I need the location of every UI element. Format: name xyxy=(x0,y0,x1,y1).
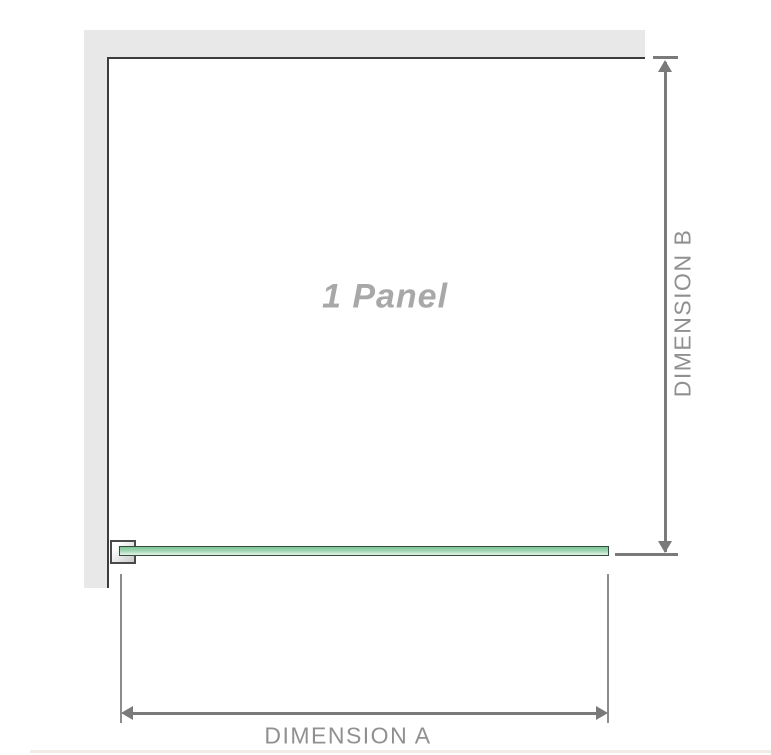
dimension-b-tick-top xyxy=(653,56,678,59)
wall-inner-edge-left xyxy=(107,57,109,588)
dimension-a-arrow-right-icon xyxy=(596,706,608,720)
wall-top xyxy=(84,30,645,58)
dimension-a-line xyxy=(127,712,602,715)
wall-left xyxy=(84,30,108,588)
wall-inner-edge-top xyxy=(107,57,645,59)
dimension-a-arrow-left-icon xyxy=(121,706,133,720)
dimension-b-line xyxy=(664,62,667,552)
dimension-a-extension-left xyxy=(120,574,122,723)
dimension-a-label: DIMENSION A xyxy=(264,723,431,750)
dimension-b-tick-bottom xyxy=(615,553,678,556)
panel-dimension-diagram: 1 Panel DIMENSION B DIMENSION A xyxy=(0,0,771,755)
dimension-b-label: DIMENSION B xyxy=(670,229,697,398)
panel-count-label: 1 Panel xyxy=(322,278,448,317)
bottom-rule xyxy=(30,750,771,753)
dimension-b-arrow-up-icon xyxy=(658,60,672,72)
dimension-a-extension-right xyxy=(607,574,609,723)
dimension-b-arrow-down-icon xyxy=(658,541,672,553)
glass-panel xyxy=(119,546,609,556)
